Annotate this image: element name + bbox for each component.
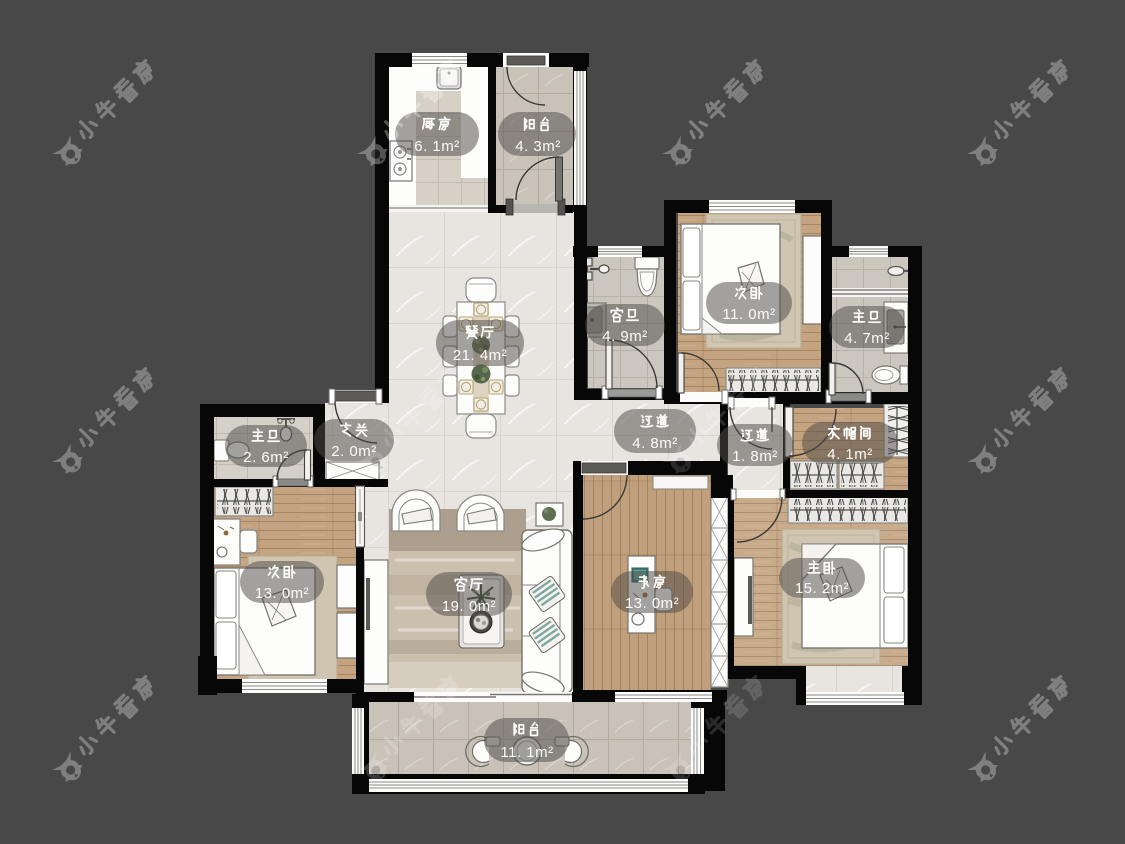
svg-text:4. 3m²: 4. 3m² bbox=[515, 138, 561, 155]
svg-text:13. 0m²: 13. 0m² bbox=[255, 585, 309, 602]
svg-text:11. 0m²: 11. 0m² bbox=[722, 306, 775, 323]
svg-text:4. 1m²: 4. 1m² bbox=[827, 446, 873, 463]
svg-text:21. 4m²: 21. 4m² bbox=[453, 347, 507, 364]
svg-text:6. 1m²: 6. 1m² bbox=[414, 138, 460, 155]
svg-text:11. 1m²: 11. 1m² bbox=[500, 744, 553, 761]
svg-text:4. 8m²: 4. 8m² bbox=[632, 435, 678, 452]
svg-text:13. 0m²: 13. 0m² bbox=[625, 595, 679, 612]
svg-text:4. 7m²: 4. 7m² bbox=[844, 330, 890, 347]
svg-text:19. 0m²: 19. 0m² bbox=[442, 598, 496, 615]
svg-text:15. 2m²: 15. 2m² bbox=[795, 580, 849, 597]
svg-text:4. 9m²: 4. 9m² bbox=[602, 328, 648, 345]
svg-text:1. 8m²: 1. 8m² bbox=[732, 448, 778, 465]
svg-text:2. 6m²: 2. 6m² bbox=[243, 449, 289, 466]
